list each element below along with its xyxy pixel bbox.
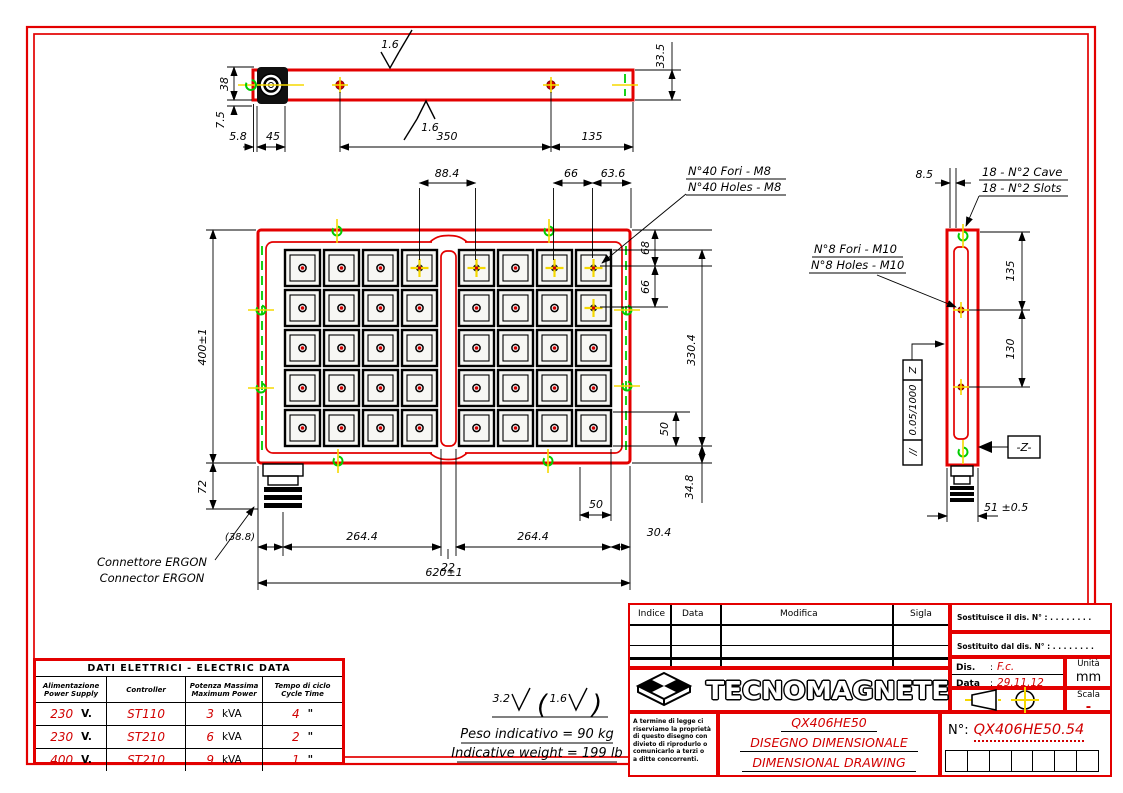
magnetic-pole-tapped-m8 [576, 290, 611, 326]
separator: : [990, 663, 993, 673]
ergon-connector-label: Connettore ERGON Connector ERGON [97, 507, 254, 585]
col-header: Tempo di ciclo [275, 682, 331, 690]
legal-line: divieto di riprodurlo o [633, 741, 713, 749]
magnetic-pole [363, 370, 398, 406]
projection-symbol-box [950, 688, 1065, 712]
magnetic-pole [285, 330, 320, 366]
ergon-connector-front-icon [263, 464, 303, 508]
unit: " [308, 731, 313, 743]
central-channel [441, 251, 456, 446]
svg-text:Indicative weight = 199 lb: Indicative weight = 199 lb [451, 746, 622, 761]
rev-col-header: Indice [638, 609, 665, 619]
number-label: N°: [948, 723, 969, 738]
magnetic-pole [576, 370, 611, 406]
revision-table: Indice Data Modifica Sigla [628, 603, 950, 668]
drawing-sheet: .r3{fill:none;stroke:#e30000;stroke-widt… [0, 0, 1123, 793]
scale-value: - [1067, 700, 1110, 715]
svg-text:7.5: 7.5 [214, 111, 227, 129]
svg-text:Z: Z [908, 365, 919, 374]
drawing-title: QX406HE50 DISEGNO DIMENSIONALE DIMENSION… [718, 712, 940, 777]
finish-value: 1.6 [381, 38, 399, 51]
mount-hole-icon [543, 77, 559, 93]
power: 6 [206, 730, 214, 744]
doc-title-it: DISEGNO DIMENSIONALE [740, 735, 918, 752]
svg-text:): ) [590, 690, 602, 720]
surface-finish-bottom-icon: 1.6 [404, 101, 439, 140]
first-angle-projection-icon [965, 687, 1051, 713]
drawing-number-box: N°: QX406HE50.54 [940, 712, 1112, 777]
controller: ST210 [127, 753, 165, 767]
drawn-by-value: F.c. [997, 661, 1014, 673]
svg-text:0.05/1000: 0.05/1000 [908, 384, 919, 435]
power: 3 [206, 707, 214, 721]
ergon-connector-side-icon [950, 466, 974, 502]
legal-line: riserviamo la proprietà [633, 726, 713, 734]
unit: V. [81, 731, 92, 743]
slot-marker-icon [959, 440, 968, 464]
title-block: Indice Data Modifica Sigla TECNOMAGNETE … [628, 600, 1112, 777]
drawn-by-label: Dis. [956, 663, 986, 673]
svg-text:264.4: 264.4 [346, 530, 378, 543]
voltage: 230 [50, 730, 73, 744]
slot-marker-icon [248, 384, 274, 393]
company-logo: TECNOMAGNETE [628, 668, 950, 712]
table-row: 230V. ST110 3kVA 4" [36, 703, 342, 726]
svg-text:45: 45 [266, 130, 280, 143]
svg-text:66: 66 [564, 167, 578, 180]
dots: . . . . . . . . [1050, 613, 1091, 622]
svg-text:330.4: 330.4 [685, 334, 698, 366]
svg-text:N°8 Fori - M10: N°8 Fori - M10 [814, 242, 897, 256]
unit: V. [81, 708, 92, 720]
magnetic-pole [363, 330, 398, 366]
svg-text:135: 135 [582, 130, 603, 143]
side-view: 8.5 18 - N°2 Cave 18 - N°2 Slots 135 130… [809, 165, 1068, 522]
magnetic-pole [363, 250, 398, 286]
svg-text:400±1: 400±1 [196, 328, 209, 365]
svg-text:68: 68 [639, 241, 652, 255]
legal-line: di questo disegno con [633, 733, 713, 741]
side-view-body [947, 230, 978, 465]
svg-text:1.6: 1.6 [550, 692, 568, 705]
magnetic-pole [459, 410, 494, 446]
svg-text://: // [908, 447, 919, 456]
replaced-by-row: Sostituito dal dis. N° : . . . . . . . . [950, 632, 1112, 657]
svg-text:72: 72 [196, 480, 209, 494]
slot-marker-icon [614, 382, 640, 391]
unit: kVA [222, 731, 242, 743]
magnetic-pole [537, 330, 572, 366]
magnetic-pole [498, 330, 533, 366]
replaces-label: Sostituisce il dis. N° : [957, 613, 1048, 622]
magnetic-pole [576, 410, 611, 446]
svg-text:264.4: 264.4 [517, 530, 549, 543]
magnetic-pole [402, 330, 437, 366]
electric-table-header: AlimentazionePower Supply Controller Pot… [36, 677, 342, 703]
replaced-by-label: Sostituito dal dis. N° : [957, 642, 1050, 651]
svg-text:620±1: 620±1 [425, 566, 462, 579]
units-value: mm [1067, 670, 1110, 685]
surface-finish-top-icon: 1.6 [381, 30, 412, 68]
svg-text:N°40 Holes - M8: N°40 Holes - M8 [688, 180, 781, 194]
table-row: 230V. ST210 6kVA 2" [36, 726, 342, 749]
replaces-row: Sostituisce il dis. N° : . . . . . . . . [950, 603, 1112, 632]
front-view [248, 219, 640, 508]
magnetic-pole [537, 370, 572, 406]
svg-text:88.4: 88.4 [435, 167, 460, 180]
legal-line: a ditte concorrenti. [633, 756, 713, 764]
magnetic-pole [402, 410, 437, 446]
svg-text:66: 66 [639, 280, 652, 294]
col-header: Alimentazione [43, 682, 99, 690]
roughness-note: 3.2 ( 1.6 ) [492, 688, 608, 720]
electric-data-table: DATI ELETTRICI - ELECTRIC DATA Alimentaz… [33, 658, 345, 765]
parallelism-fcf: Z 0.05/1000 // [903, 344, 944, 465]
scale-box: Scala - [1065, 688, 1112, 712]
svg-text:Connector ERGON: Connector ERGON [100, 571, 205, 585]
scale-label: Scala [1067, 690, 1110, 700]
author-date-box: Dis. : F.c. Data : 29.11.12 [950, 657, 1065, 688]
magnetic-pole [324, 290, 359, 326]
svg-text:(: ( [537, 690, 549, 720]
magnetic-pole [459, 370, 494, 406]
electric-table-title: DATI ELETTRICI - ELECTRIC DATA [36, 661, 342, 677]
top-view: 1.6 1.6 38 7.5 5.8 45 [214, 30, 681, 152]
magnetic-pole [285, 410, 320, 446]
col-header: Maximum Power [191, 690, 256, 698]
svg-text:Connettore ERGON: Connettore ERGON [97, 555, 207, 569]
magnetic-pole [498, 410, 533, 446]
col-header: Power Supply [44, 690, 98, 698]
svg-text:18 - N°2 Slots: 18 - N°2 Slots [982, 181, 1061, 195]
rev-col-header: Data [682, 609, 704, 619]
svg-text:51 ±0.5: 51 ±0.5 [984, 501, 1028, 514]
rev-col-header: Sigla [910, 609, 932, 619]
units-label: Unità [1067, 659, 1110, 669]
col-header: Potenza Massima [190, 682, 259, 690]
magnetic-pole-tapped-m8 [459, 250, 494, 286]
svg-text:N°8 Holes - M10: N°8 Holes - M10 [811, 258, 904, 272]
rev-col-header: Modifica [780, 609, 818, 619]
legal-notice: A termine di legge ci riserviamo la prop… [628, 712, 718, 777]
magnetic-pole [576, 330, 611, 366]
col-header: Controller [126, 686, 166, 694]
magnetic-pole [402, 370, 437, 406]
cycle-time: 1 [292, 753, 300, 767]
magnetic-pole [285, 370, 320, 406]
side-view-dimensions: 8.5 18 - N°2 Cave 18 - N°2 Slots 135 130… [809, 165, 1068, 522]
slot-marker-icon [248, 306, 274, 315]
unit: " [308, 708, 313, 720]
magnetic-pole [324, 410, 359, 446]
company-name: TECNOMAGNETE [706, 676, 949, 705]
magnetic-pole [498, 290, 533, 326]
magnetic-pole [537, 290, 572, 326]
controller: ST210 [127, 730, 165, 744]
svg-text:Peso indicativo = 90 kg: Peso indicativo = 90 kg [460, 727, 614, 742]
voltage: 400 [50, 753, 73, 767]
m10-hole-icon [953, 302, 969, 318]
magnetic-pole [324, 330, 359, 366]
svg-text:135: 135 [1004, 261, 1017, 282]
slot-marker-icon [959, 224, 968, 248]
svg-text:-Z-: -Z- [1017, 441, 1032, 454]
svg-text:N°40 Fori - M8: N°40 Fori - M8 [688, 164, 771, 178]
svg-text:3.2: 3.2 [493, 692, 511, 705]
svg-text:50: 50 [589, 498, 603, 511]
svg-text:30.4: 30.4 [647, 526, 672, 539]
dots: . . . . . . . . [1053, 642, 1094, 651]
general-notes: 3.2 ( 1.6 ) Peso indicativo = 90 kg Indi… [451, 688, 622, 762]
mount-hole-icon [332, 77, 348, 93]
weight-note: Peso indicativo = 90 kg Indicative weigh… [451, 727, 622, 762]
magnetic-pole [498, 250, 533, 286]
magnetic-pole [363, 290, 398, 326]
units-box: Unità mm [1065, 657, 1112, 688]
magnetic-pole [537, 410, 572, 446]
magnetic-pole [459, 290, 494, 326]
datum-z-label: -Z- [978, 436, 1040, 458]
product-code: QX406HE50 [781, 715, 876, 732]
svg-text:5.8: 5.8 [229, 130, 247, 143]
controller: ST110 [127, 707, 165, 721]
svg-text:(38.8): (38.8) [225, 532, 255, 543]
table-row: 400V. ST210 9kVA 1" [36, 749, 342, 771]
svg-text:38: 38 [218, 77, 231, 91]
svg-text:63.6: 63.6 [601, 167, 626, 180]
col-header: Cycle Time [281, 690, 324, 698]
svg-text:130: 130 [1004, 339, 1017, 360]
svg-text:350: 350 [437, 130, 458, 143]
cycle-time: 4 [292, 707, 300, 721]
magnetic-pole [285, 290, 320, 326]
m10-hole-icon [953, 379, 969, 395]
unit: kVA [222, 754, 242, 766]
unit: kVA [222, 708, 242, 720]
magnetic-pole-grid [285, 250, 611, 446]
magnetic-pole [402, 290, 437, 326]
magnetic-pole [324, 370, 359, 406]
magnetic-pole [498, 370, 533, 406]
magnetic-pole [459, 330, 494, 366]
power: 9 [206, 753, 214, 767]
tecnomagnete-logo-icon [634, 671, 694, 709]
legal-line: A termine di legge ci [633, 718, 713, 726]
svg-text:50: 50 [658, 422, 671, 436]
legal-line: comunicarlo a terzi o [633, 748, 713, 756]
voltage: 230 [50, 707, 73, 721]
magnetic-pole-tapped-m8 [537, 250, 572, 286]
svg-text:8.5: 8.5 [916, 168, 934, 181]
magnetic-pole-tapped-m8 [576, 250, 611, 286]
unit: V. [81, 754, 92, 766]
svg-text:34.8: 34.8 [683, 475, 696, 500]
drawing-number: QX406HE50.54 [974, 722, 1085, 742]
magnetic-pole [285, 250, 320, 286]
top-view-body [253, 70, 633, 100]
magnetic-pole [324, 250, 359, 286]
svg-text:18 - N°2 Cave: 18 - N°2 Cave [982, 165, 1062, 179]
svg-text:33.5: 33.5 [654, 44, 667, 69]
cycle-time: 2 [292, 730, 300, 744]
magnetic-pole [363, 410, 398, 446]
empty-cells [945, 750, 1099, 772]
doc-title-en: DIMENSIONAL DRAWING [742, 755, 915, 772]
unit: " [308, 754, 313, 766]
